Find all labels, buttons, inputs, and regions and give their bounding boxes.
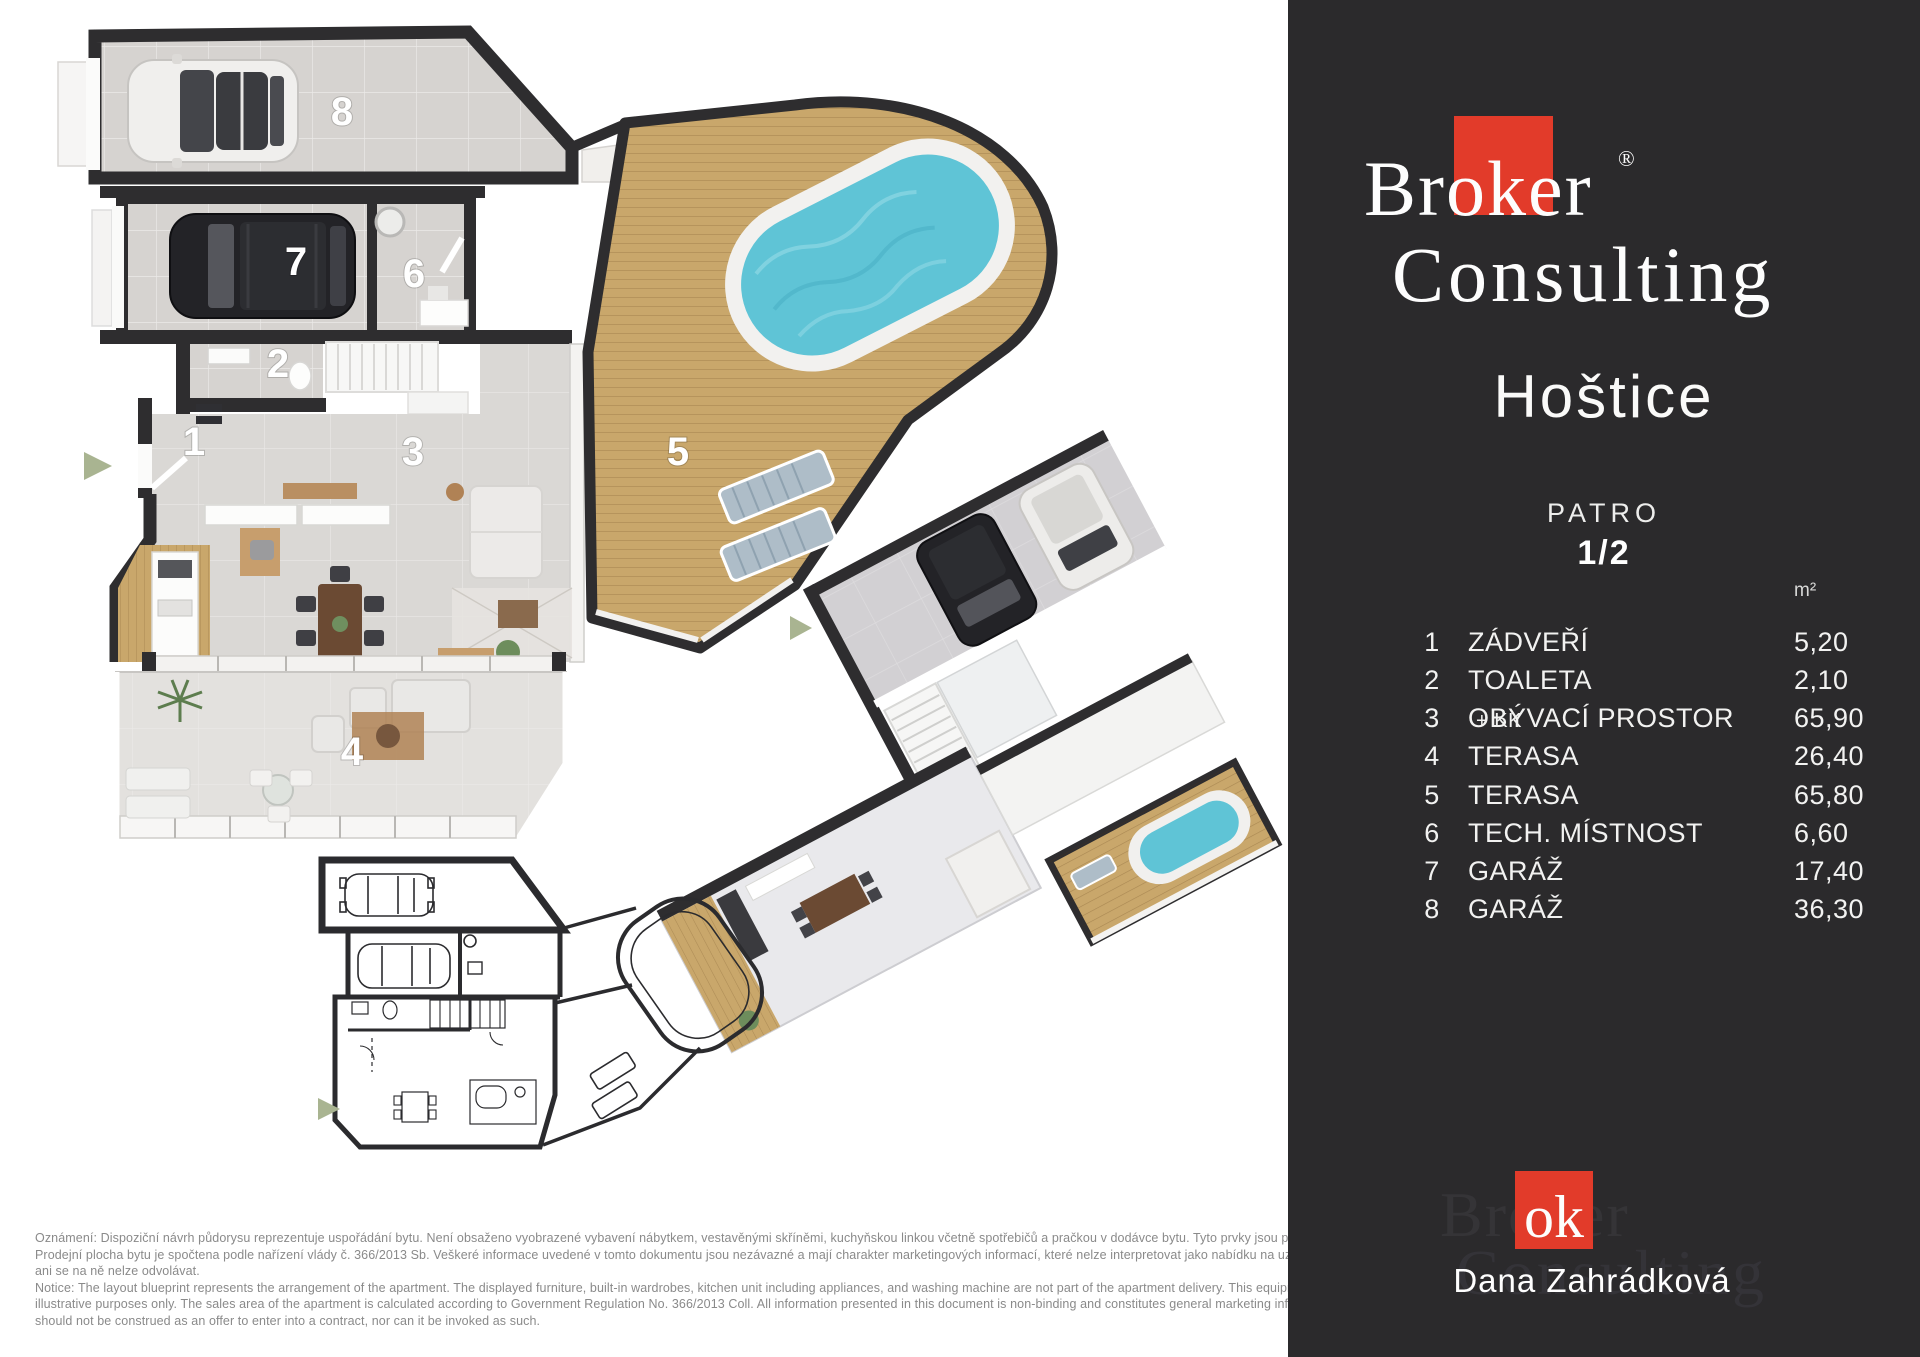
room-row: 7 GARÁŽ 17,40 [1288, 856, 1920, 894]
bp-car-1 [340, 874, 434, 916]
room-area: 65,80 [1794, 780, 1864, 811]
disclaimer-line: Notice: The layout blueprint represents … [35, 1280, 1387, 1297]
room-terrace-4: 4 [116, 672, 566, 840]
black-car [170, 214, 355, 318]
room-label-5: 5 [667, 430, 689, 474]
room-list: 1 ZÁDVEŘÍ 5,20 2 TOALETA 2,10 3 OBÝVACÍ … [1288, 627, 1920, 937]
entrance-arrow-icon [84, 452, 112, 480]
registered-icon: ® [1618, 146, 1635, 172]
room-garage-8: 8 [58, 32, 662, 182]
footer-logo-ok: ok [1515, 1171, 1593, 1253]
room-name: GARÁŽ [1468, 894, 1476, 925]
property-title: Hoštice [1288, 362, 1920, 431]
room-number: 5 [1418, 780, 1446, 811]
room-name: OBÝVACÍ PROSTOR+ KK [1468, 703, 1522, 734]
room-row: 4 TERASA 26,40 [1288, 741, 1920, 779]
disclaimer-line: Oznámení: Dispoziční návrh půdorysu repr… [35, 1230, 1387, 1247]
room-number: 7 [1418, 856, 1446, 887]
agent-name: Dana Zahrádková [1288, 1262, 1896, 1300]
disclaimer-line: should not be construed as an offer to e… [35, 1313, 1387, 1330]
floorplan-canvas: 8 7 [0, 0, 1288, 1357]
brand-name-top: Broker [1364, 150, 1593, 228]
page: 8 7 [0, 0, 1920, 1357]
room-row: 5 TERASA 65,80 [1288, 780, 1920, 818]
room-number: 8 [1418, 894, 1446, 925]
glass-wall-east [570, 344, 584, 662]
room-label-6: 6 [403, 252, 425, 296]
disclaimer-line: illustrative purposes only. The sales ar… [35, 1296, 1387, 1313]
room-number: 3 [1418, 703, 1446, 734]
info-panel: Broker ® Consulting Hoštice PATRO 1/2 m²… [1288, 0, 1920, 1357]
room-label-4: 4 [341, 730, 364, 774]
room-name: TOALETA [1468, 665, 1476, 696]
room-number: 2 [1418, 665, 1446, 696]
room-area: 2,10 [1794, 665, 1849, 696]
disclaimer: Oznámení: Dispoziční návrh půdorysu repr… [35, 1230, 1387, 1330]
room-name: TECH. MÍSTNOST [1468, 818, 1476, 849]
room-number: 4 [1418, 741, 1446, 772]
white-car [128, 54, 298, 168]
room-area: 17,40 [1794, 856, 1864, 887]
room-row: 2 TOALETA 2,10 [1288, 665, 1920, 703]
room-name: TERASA [1468, 780, 1476, 811]
staircase [326, 342, 468, 414]
room-number: 6 [1418, 818, 1446, 849]
bp-car-2 [358, 944, 450, 988]
room-label-7: 7 [285, 240, 307, 284]
boiler-icon [376, 208, 404, 236]
deck-arrow-icon [790, 616, 812, 640]
floor-value: 1/2 [1288, 534, 1920, 573]
floor-label: PATRO [1288, 498, 1920, 529]
room-area: 6,60 [1794, 818, 1849, 849]
room-label-3: 3 [402, 430, 424, 474]
room-name: ZÁDVEŘÍ [1468, 627, 1476, 658]
glass-wall-south [142, 652, 566, 674]
room-row: 3 OBÝVACÍ PROSTOR+ KK 65,90 [1288, 703, 1920, 741]
room-label-1: 1 [183, 420, 205, 464]
disclaimer-line: ani se na ně nelze odvolávat. [35, 1263, 1387, 1280]
room-name: TERASA [1468, 741, 1476, 772]
room-label-2: 2 [267, 342, 289, 386]
brand-name-bottom: Consulting [1392, 236, 1774, 314]
room-label-8: 8 [331, 90, 353, 134]
room-row: 1 ZÁDVEŘÍ 5,20 [1288, 627, 1920, 665]
room-row: 6 TECH. MÍSTNOST 6,60 [1288, 818, 1920, 856]
room-area: 65,90 [1794, 703, 1864, 734]
area-unit-label: m² [1794, 580, 1816, 602]
disclaimer-line: Prodejní plocha bytu je spočtena podle n… [35, 1247, 1387, 1264]
room-area: 36,30 [1794, 894, 1864, 925]
room-area: 26,40 [1794, 741, 1864, 772]
room-name: GARÁŽ [1468, 856, 1476, 887]
room-area: 5,20 [1794, 627, 1849, 658]
room-number: 1 [1418, 627, 1446, 658]
room-row: 8 GARÁŽ 36,30 [1288, 894, 1920, 932]
